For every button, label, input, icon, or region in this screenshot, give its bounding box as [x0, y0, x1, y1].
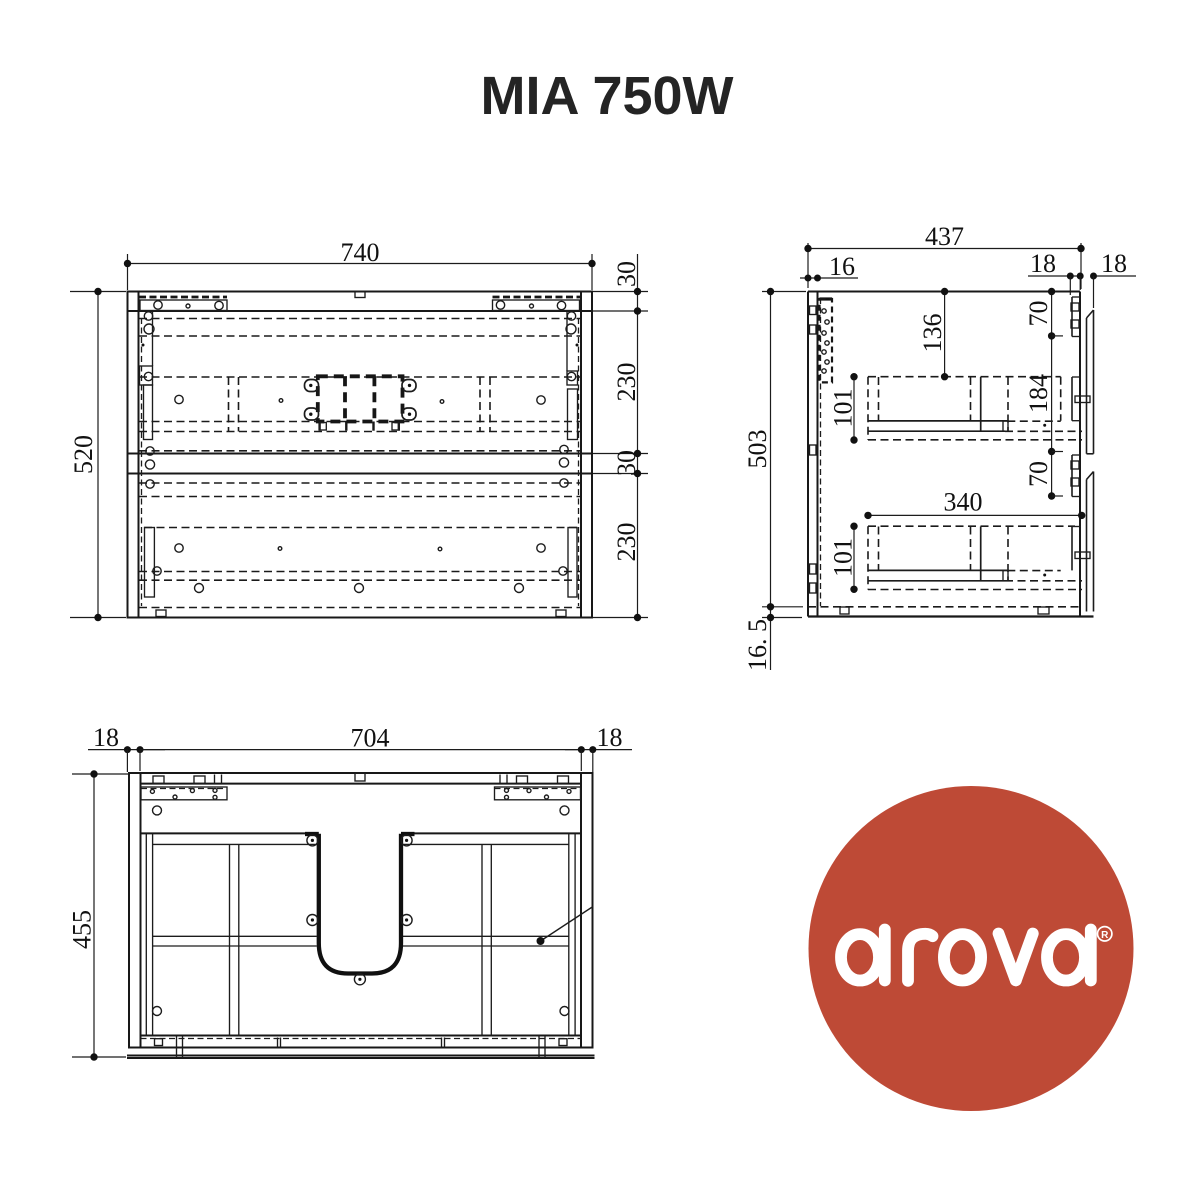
svg-text:70: 70 — [1024, 301, 1053, 327]
svg-text:437: 437 — [925, 222, 964, 251]
svg-text:16: 16 — [829, 252, 855, 281]
svg-text:30: 30 — [612, 450, 641, 476]
svg-text:184: 184 — [1024, 374, 1053, 413]
svg-text:704: 704 — [351, 724, 390, 753]
svg-text:101: 101 — [829, 538, 858, 577]
svg-text:MIA 750W: MIA 750W — [480, 66, 733, 126]
svg-text:R: R — [1101, 930, 1109, 941]
svg-text:18: 18 — [1030, 249, 1056, 278]
svg-text:18: 18 — [597, 723, 623, 752]
svg-text:18: 18 — [93, 723, 119, 752]
svg-text:503: 503 — [743, 430, 772, 469]
svg-text:30: 30 — [612, 261, 641, 287]
svg-text:18: 18 — [1101, 249, 1127, 278]
svg-text:230: 230 — [612, 363, 641, 402]
svg-text:70: 70 — [1024, 461, 1053, 487]
svg-text:230: 230 — [612, 523, 641, 562]
svg-text:740: 740 — [341, 238, 380, 267]
svg-text:455: 455 — [68, 910, 97, 949]
svg-text:101: 101 — [829, 389, 858, 428]
svg-text:16. 5: 16. 5 — [743, 619, 772, 671]
svg-text:340: 340 — [944, 488, 983, 517]
svg-text:136: 136 — [918, 314, 947, 353]
svg-text:520: 520 — [69, 435, 98, 474]
